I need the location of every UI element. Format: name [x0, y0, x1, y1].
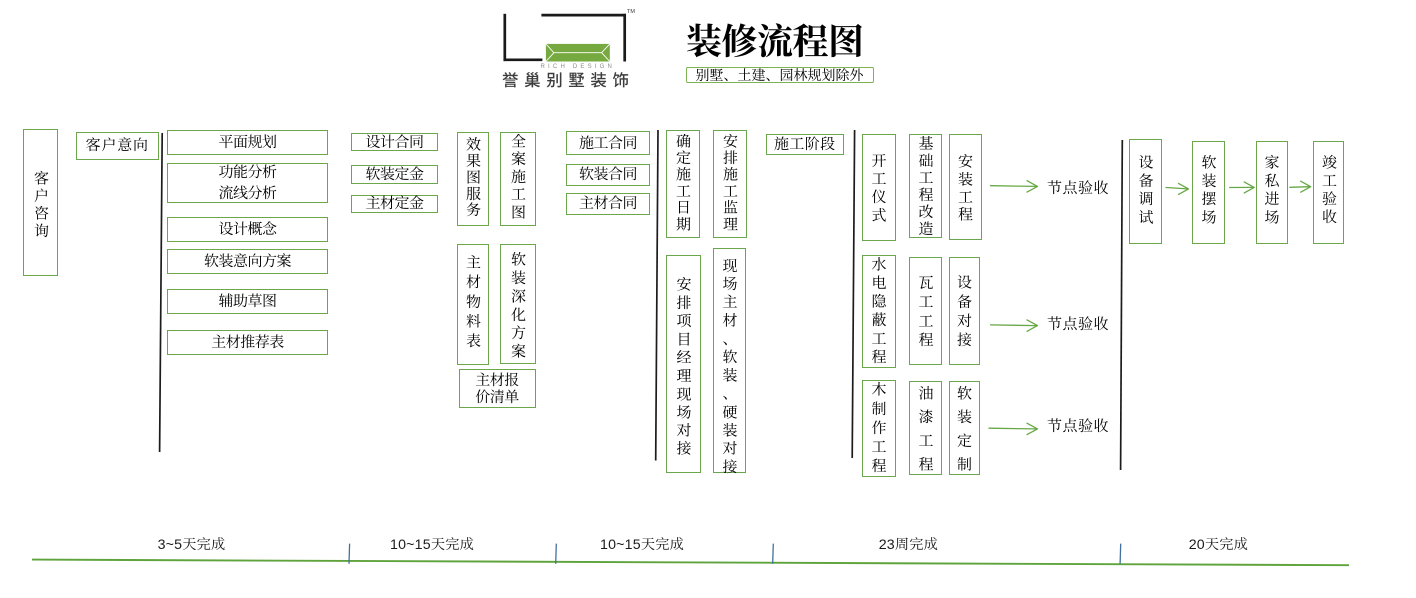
svg-text:TM: TM [627, 9, 635, 15]
